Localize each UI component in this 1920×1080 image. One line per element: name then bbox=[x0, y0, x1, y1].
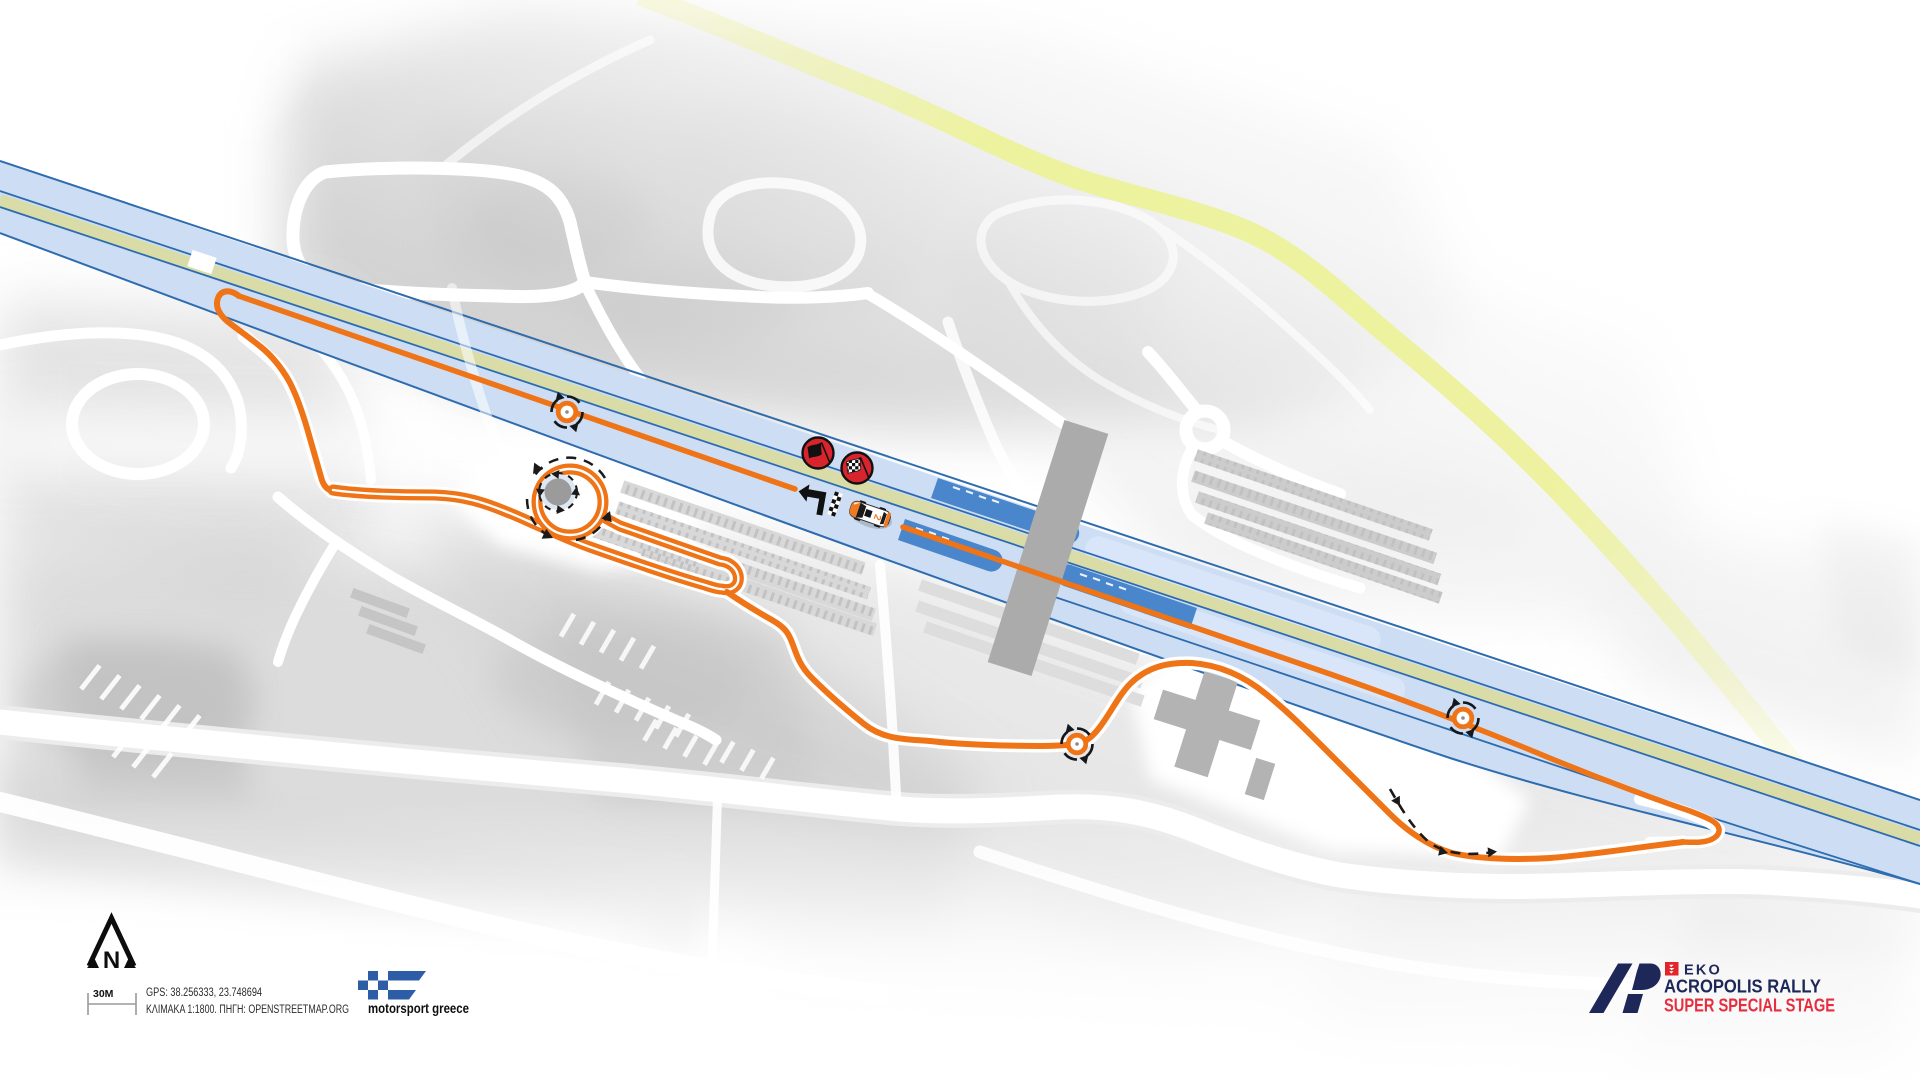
svg-text:motorsport greece: motorsport greece bbox=[368, 1001, 469, 1016]
svg-text:N: N bbox=[103, 947, 120, 974]
svg-text:30M: 30M bbox=[93, 988, 114, 1000]
svg-text:ACROPOLIS RALLY: ACROPOLIS RALLY bbox=[1664, 977, 1821, 997]
svg-text:ΚΛΙΜΑΚΑ 1:1800. ΠΗΓΗ: OPENSTRE: ΚΛΙΜΑΚΑ 1:1800. ΠΗΓΗ: OPENSTREETMAP.ORG bbox=[146, 1004, 349, 1016]
svg-text:SUPER SPECIAL STAGE: SUPER SPECIAL STAGE bbox=[1664, 996, 1835, 1016]
svg-text:GPS: 38.256333, 23.748694: GPS: 38.256333, 23.748694 bbox=[146, 987, 262, 999]
